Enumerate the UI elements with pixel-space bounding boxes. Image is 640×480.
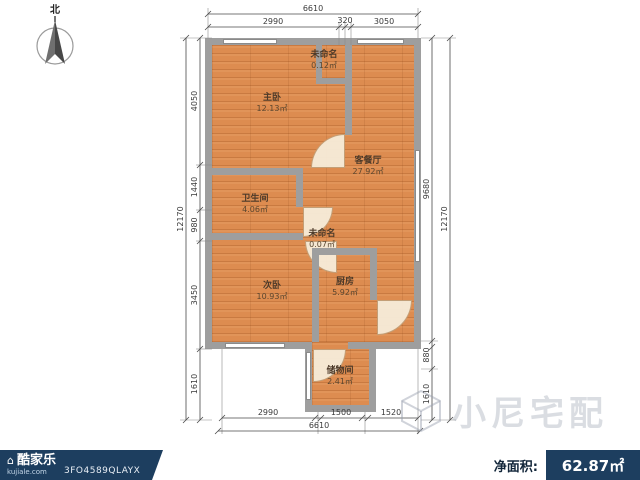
window-right xyxy=(415,150,420,262)
dim-bottom-overall: 6610 xyxy=(309,421,329,430)
wall-kitchen-top xyxy=(312,248,377,255)
dim-right-seg1: 9680 xyxy=(422,179,431,199)
dim-top-overall: 6610 xyxy=(303,4,323,13)
wall-master-divider xyxy=(345,45,352,135)
watermark: 小尼宅配 xyxy=(398,386,608,435)
dim-left-seg5: 1610 xyxy=(190,374,199,394)
dim-top-seg2: 320 xyxy=(337,16,352,25)
floorplan-page: 北 未命名 0.12㎡ 主卧 12.13㎡ xyxy=(0,0,640,480)
brand-domain: kujiale.com xyxy=(7,469,56,476)
watermark-text: 小尼宅配 xyxy=(452,386,608,435)
net-area-label: 净面积: xyxy=(494,456,538,475)
net-area: 净面积: 62.87㎡ xyxy=(494,450,640,480)
wall-bath-bottom xyxy=(212,233,303,240)
dim-right-seg2: 880 xyxy=(422,347,431,362)
wall-storage-right xyxy=(369,342,376,412)
window-top-left xyxy=(223,39,277,44)
brand-stack: ⌂ 酷家乐 kujiale.com xyxy=(7,454,56,476)
wall-kitchen-right xyxy=(370,255,377,300)
wall-bath-top xyxy=(212,168,303,175)
dim-right-seg3: 1610 xyxy=(422,384,431,404)
wall-storage-bottom xyxy=(305,405,376,412)
dim-top-seg3: 3050 xyxy=(374,17,394,26)
wall-bath-right xyxy=(296,175,303,207)
watermark-cube-icon xyxy=(398,388,444,434)
wall-bed2-kitchen xyxy=(312,248,319,342)
brand-name: 酷家乐 xyxy=(17,454,56,467)
window-top-right xyxy=(357,39,404,44)
dim-bottom-seg3: 1520 xyxy=(381,408,401,417)
dim-left-seg4: 3450 xyxy=(190,285,199,305)
dim-left-overall: 12170 xyxy=(176,206,185,231)
house-icon: ⌂ xyxy=(7,455,14,466)
net-area-value: 62.87㎡ xyxy=(546,450,640,480)
compass-arrow-icon xyxy=(24,12,86,78)
dim-top-seg1: 2990 xyxy=(263,17,283,26)
compass: 北 xyxy=(24,0,86,78)
dim-left-seg1: 4050 xyxy=(190,91,199,111)
wall-outer-left xyxy=(205,38,212,349)
window-storage xyxy=(306,352,311,400)
dim-left-seg2: 1440 xyxy=(190,177,199,197)
brand-block: ⌂ 酷家乐 kujiale.com 3FO4589QLAYX xyxy=(0,450,170,480)
footer-bar: ⌂ 酷家乐 kujiale.com 3FO4589QLAYX 净面积: 62.8… xyxy=(0,450,640,480)
dim-right-overall: 12170 xyxy=(440,206,449,231)
dim-left-seg3: 980 xyxy=(190,217,199,232)
dim-bottom-seg1: 2990 xyxy=(258,408,278,417)
plan-code: 3FO4589QLAYX xyxy=(64,466,140,476)
wall-bottom-right xyxy=(348,342,421,349)
window-bottom xyxy=(225,343,285,348)
